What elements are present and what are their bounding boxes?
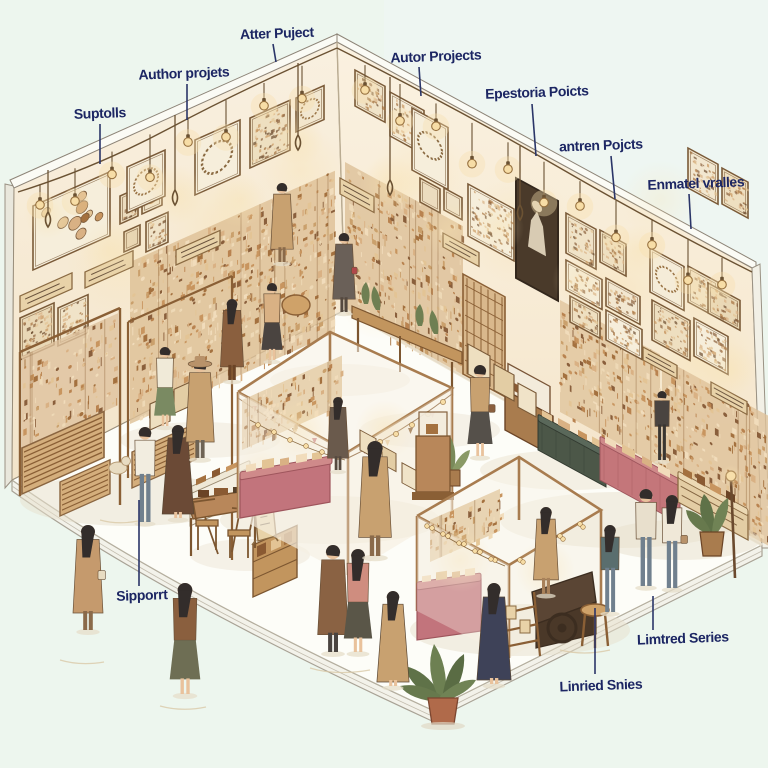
svg-text:Linried Snies: Linried Snies xyxy=(559,676,643,695)
svg-text:antren Pojcts: antren Pojcts xyxy=(559,136,644,155)
svg-text:Enmatel vralles: Enmatel vralles xyxy=(647,173,745,192)
svg-text:Suptolls: Suptolls xyxy=(74,104,127,122)
svg-text:Author projets: Author projets xyxy=(138,63,230,82)
svg-text:Sipporrt: Sipporrt xyxy=(116,586,169,604)
svg-text:Autor Projects: Autor Projects xyxy=(390,46,482,65)
svg-text:Atter Puject: Atter Puject xyxy=(240,24,315,43)
svg-text:Limtred Series: Limtred Series xyxy=(637,628,730,647)
